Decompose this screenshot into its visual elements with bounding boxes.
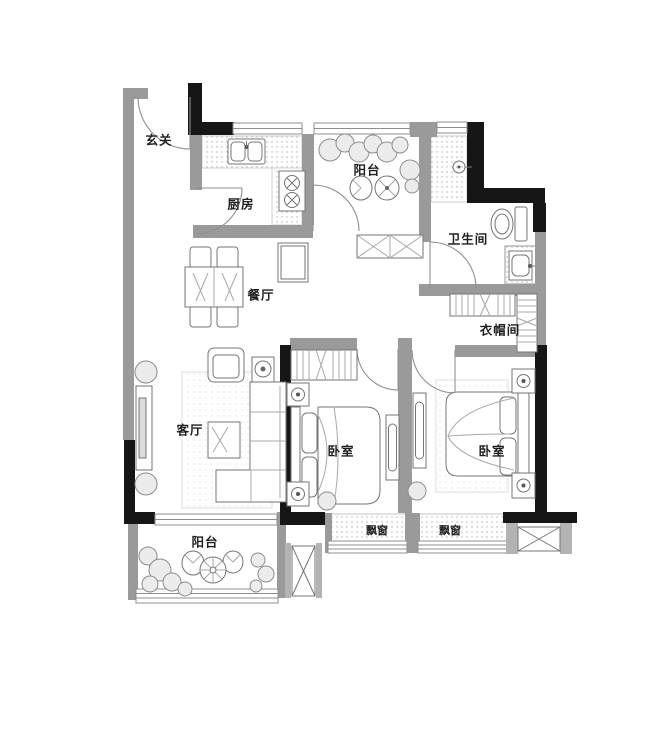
room-label-balcony-bottom: 阳台: [191, 532, 218, 551]
balcony-top-window: [314, 123, 410, 134]
toilet: [491, 207, 527, 241]
bedroom-1-wardrobe: [291, 350, 357, 380]
fridge: [278, 243, 308, 282]
kitchen-window: [233, 123, 302, 134]
room-label-bathroom: 卫生间: [448, 229, 489, 248]
room-label-balcony-top: 阳台: [353, 160, 380, 179]
bed-2: [446, 390, 529, 476]
kitchen-stove: [279, 171, 305, 211]
room-label-entry: 玄关: [145, 130, 172, 149]
room-label-living: 客厅: [176, 420, 203, 439]
floor-plan-canvas: 玄关 厨房 阳台 卫生间 餐厅 衣帽间 客厅 卧室 卧室 阳台 飘窗 飘窗: [0, 0, 650, 750]
ac-platform-middle: [285, 543, 322, 598]
side-table: [252, 357, 274, 382]
coffee-table: [208, 422, 240, 458]
baywindow-2-sill: [418, 514, 510, 541]
bathroom-door: [430, 242, 476, 288]
living-balcony-slider: [155, 514, 277, 525]
balcony-bottom-table: [200, 557, 226, 583]
tv-cabinet: [136, 386, 152, 470]
room-label-baywindow-2: 飘窗: [439, 522, 461, 538]
bedroom-1-door: [357, 349, 398, 390]
room-label-bedroom-2: 卧室: [478, 441, 505, 460]
vanity-sink: [505, 246, 536, 284]
room-label-baywindow-1: 飘窗: [366, 522, 388, 538]
balcony-top-table: [375, 176, 399, 200]
baywindow-2-glass: [418, 541, 510, 553]
dining-table-set: [185, 247, 243, 327]
ac-platform-right: [506, 523, 572, 554]
room-label-cloakroom: 衣帽间: [480, 320, 521, 339]
hall-cabinet: [357, 235, 423, 258]
kitchen-sink: [228, 139, 265, 164]
baywindow-1-glass: [328, 541, 407, 553]
shower-window: [437, 122, 467, 133]
armchair: [208, 348, 244, 382]
balcony-top-chair: [350, 176, 372, 200]
room-label-kitchen: 厨房: [227, 194, 254, 213]
room-label-bedroom-1: 卧室: [327, 441, 354, 460]
shower-floor: [431, 136, 467, 202]
room-label-dining: 餐厅: [247, 285, 274, 304]
floor-plan-drawing: [0, 0, 650, 750]
